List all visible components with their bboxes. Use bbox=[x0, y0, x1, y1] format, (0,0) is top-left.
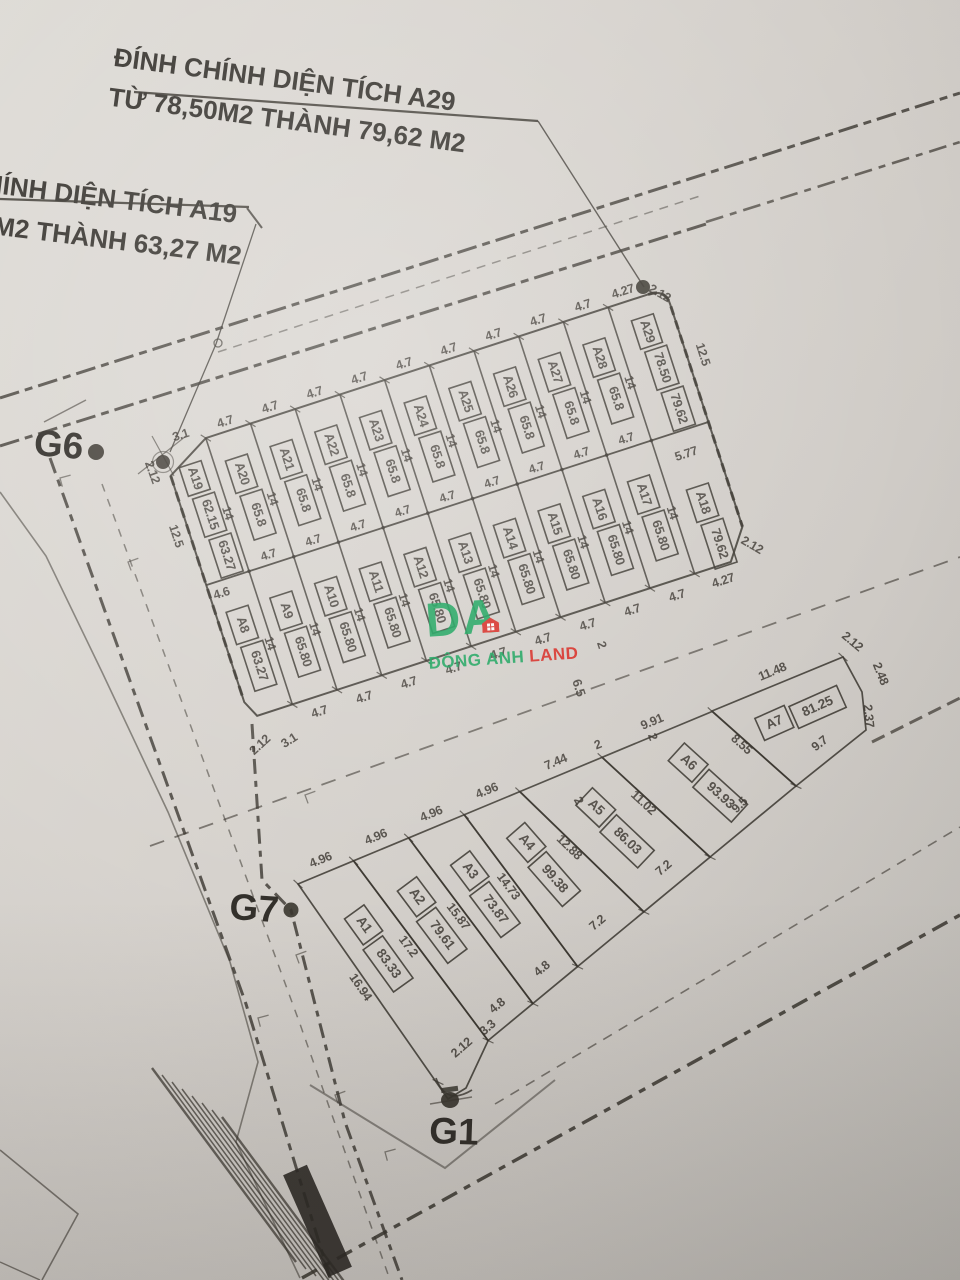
dim-label: 7.2 bbox=[653, 857, 675, 879]
plot-A18: A1879.62 bbox=[686, 482, 737, 570]
plot-id-label: A8 bbox=[234, 615, 253, 635]
survey-point-g7 bbox=[284, 903, 299, 918]
survey-tick bbox=[638, 909, 649, 914]
dim-label: 11.02 bbox=[628, 788, 659, 818]
survey-tick bbox=[460, 811, 469, 819]
dim-label: 4.7 bbox=[215, 412, 235, 431]
dim-label: 2.37 bbox=[861, 704, 877, 729]
survey-tick bbox=[515, 788, 524, 796]
dim-label: 4.7 bbox=[260, 398, 280, 417]
survey-tick bbox=[705, 854, 716, 859]
dim-label: 4.7 bbox=[259, 545, 279, 563]
dim-label: 9.7 bbox=[809, 733, 831, 754]
dim-label: 12.5 bbox=[693, 341, 714, 368]
dim-label: 4.7 bbox=[527, 458, 547, 476]
dim-label: 4.7 bbox=[399, 673, 419, 692]
dim-label: 5.77 bbox=[673, 443, 700, 464]
dim-label: 12.5 bbox=[166, 523, 187, 550]
dim-label: 4.7 bbox=[393, 502, 413, 520]
leader-line bbox=[538, 121, 644, 287]
boundary-line bbox=[0, 1150, 78, 1280]
dim-label: 4.96 bbox=[362, 826, 389, 848]
survey-point-a29 bbox=[636, 280, 650, 294]
dim-label: 4.7 bbox=[354, 688, 374, 707]
plot-area-label: 65.80 bbox=[649, 518, 673, 552]
road-line bbox=[102, 484, 390, 1280]
dim-label: 14 bbox=[219, 504, 237, 521]
dim-label: 4.7 bbox=[439, 340, 459, 359]
road-line bbox=[706, 142, 960, 222]
bench-mark bbox=[258, 1015, 271, 1027]
plot-area-label: 62.15 bbox=[199, 497, 223, 531]
dim-label: 2.48 bbox=[870, 660, 892, 687]
watermark-logo: DA bbox=[424, 583, 647, 650]
dim-label: 17.2 bbox=[396, 933, 421, 960]
survey-tick bbox=[572, 964, 583, 969]
dim-label: 4.7 bbox=[573, 296, 593, 315]
spine-node bbox=[649, 438, 654, 443]
survey-tick bbox=[290, 403, 300, 414]
spine-node bbox=[247, 569, 252, 574]
survey-tick bbox=[349, 857, 358, 865]
dim-label: 4.7 bbox=[309, 702, 329, 721]
bench-mark bbox=[305, 791, 318, 803]
dim-label: 4.27 bbox=[710, 570, 737, 591]
dim-label: 3.1 bbox=[171, 426, 191, 445]
dim-label: 2.12 bbox=[448, 1034, 475, 1060]
survey-tick bbox=[380, 374, 390, 385]
dim-label: 12.88 bbox=[554, 832, 585, 863]
spine-node bbox=[426, 511, 431, 516]
spine-node bbox=[336, 540, 341, 545]
roads-layer bbox=[0, 93, 960, 1280]
road-line bbox=[50, 458, 330, 1278]
dim-label: 7.2 bbox=[586, 912, 608, 934]
plot-A1: A183.33 bbox=[298, 861, 488, 1099]
spine-node bbox=[470, 496, 475, 501]
dim-label: 7.44 bbox=[542, 751, 569, 773]
survey-tick bbox=[294, 880, 303, 888]
dim-label: 4.7 bbox=[483, 325, 503, 344]
dim-label: 2 bbox=[571, 794, 587, 807]
boundary-line bbox=[44, 400, 86, 422]
bench-mark bbox=[60, 475, 73, 487]
leaders-layer bbox=[0, 92, 644, 452]
plot-area-label: 81.25 bbox=[799, 692, 835, 719]
lower-block: A183.33A279.61A373.87A499.38A586.03A693.… bbox=[294, 629, 892, 1099]
block-spine bbox=[206, 422, 708, 585]
plot-area-label: 65.80 bbox=[605, 533, 629, 567]
plot-area-label: 63.27 bbox=[215, 538, 239, 572]
survey-tick bbox=[598, 753, 607, 761]
survey-point-g6 bbox=[88, 444, 104, 460]
dim-label: 4.7 bbox=[394, 354, 414, 373]
spine-node bbox=[381, 525, 386, 530]
survey-tick bbox=[377, 670, 387, 681]
survey-tick bbox=[527, 1001, 538, 1006]
plot-A4: A499.38 bbox=[464, 792, 644, 967]
survey-tick bbox=[287, 699, 297, 710]
dim-label: 4.7 bbox=[616, 429, 636, 447]
spine-node bbox=[515, 482, 520, 487]
survey-point-label-g6: G6 bbox=[32, 422, 85, 468]
survey-tick bbox=[839, 653, 848, 661]
road-line bbox=[495, 827, 960, 1104]
survey-tick bbox=[690, 568, 700, 579]
dim-label: 2.12 bbox=[247, 732, 274, 758]
dim-label: 2.12 bbox=[839, 629, 866, 655]
spine-node bbox=[604, 453, 609, 458]
plot-area-label: 65.80 bbox=[381, 605, 405, 639]
hatch-line bbox=[162, 1075, 306, 1269]
plot-area-label: 65.80 bbox=[292, 634, 316, 668]
survey-tick bbox=[558, 316, 568, 327]
survey-tick bbox=[708, 707, 717, 715]
plot-area-label: 65.80 bbox=[336, 620, 360, 654]
plot-label-group: A781.25 bbox=[755, 683, 846, 743]
survey-tick bbox=[514, 331, 524, 342]
dim-label: 2 bbox=[645, 731, 661, 742]
dim-label: 14 bbox=[261, 635, 279, 652]
dim-label: 4.96 bbox=[473, 779, 500, 801]
survey-point-label-g1: G1 bbox=[429, 1110, 480, 1154]
dim-label: 4.8 bbox=[486, 995, 508, 1017]
survey-point-label-g7: G7 bbox=[228, 886, 280, 931]
dim-label: 4.8 bbox=[531, 958, 553, 980]
dim-label: 4.7 bbox=[528, 311, 548, 330]
spine-node bbox=[291, 554, 296, 559]
plot-A5: A586.03 bbox=[520, 757, 710, 911]
leader-node bbox=[214, 339, 222, 347]
dim-label: 11.48 bbox=[756, 659, 789, 683]
dim-label: 4.7 bbox=[572, 444, 592, 462]
dim-label: 15.87 bbox=[444, 900, 473, 933]
watermark-brand-red: LAND bbox=[529, 643, 579, 665]
dim-label: 4.7 bbox=[349, 369, 369, 388]
dim-label: 2 bbox=[592, 737, 604, 753]
dim-label: 4.96 bbox=[307, 849, 334, 871]
upper-block: A1962.1563.27A2065.8A2165.8A2265.8A2365.… bbox=[135, 265, 786, 766]
plot-id-label: A9 bbox=[277, 600, 296, 620]
plot-area-label: 73.87 bbox=[480, 892, 511, 927]
dim-label: 4.7 bbox=[348, 516, 368, 534]
bench-mark bbox=[385, 1149, 398, 1161]
survey-point-g1-cap bbox=[441, 1086, 459, 1093]
dim-label: 8.55 bbox=[728, 731, 755, 757]
plot-polygon bbox=[712, 657, 866, 786]
plot-A29: A2978.5079.62 bbox=[631, 312, 695, 433]
road-line bbox=[0, 224, 706, 446]
survey-tick bbox=[332, 684, 342, 695]
survey-tick bbox=[469, 345, 479, 356]
leader-line bbox=[247, 208, 262, 228]
dim-label: 4.7 bbox=[667, 586, 687, 605]
boundary-line bbox=[0, 1262, 40, 1280]
survey-tick bbox=[245, 418, 255, 429]
watermark: DA ĐÔNG ANHLAND bbox=[424, 583, 649, 674]
plot-A7: A781.25 bbox=[712, 657, 866, 786]
plot-id-label: A7 bbox=[763, 712, 784, 732]
dim-label: 2.12 bbox=[739, 533, 766, 557]
survey-tick bbox=[645, 583, 655, 594]
road-line bbox=[872, 698, 960, 742]
plot-A19: A1962.1563.27 bbox=[179, 459, 243, 580]
plot-area-label: 99.38 bbox=[539, 861, 572, 896]
survey-tick bbox=[424, 360, 434, 371]
plot-A2: A279.61 bbox=[354, 838, 533, 1041]
survey-tick bbox=[404, 834, 413, 842]
road-line bbox=[218, 196, 700, 352]
plot-area-label: 78.50 bbox=[651, 350, 675, 384]
spine-node bbox=[560, 467, 565, 472]
dim-label: 4.96 bbox=[418, 803, 445, 825]
survey-tick bbox=[603, 302, 613, 313]
plot-area-label: 79.61 bbox=[427, 917, 459, 952]
dim-label: 4.7 bbox=[482, 473, 502, 491]
dim-label: 3.1 bbox=[278, 730, 300, 751]
survey-tick bbox=[791, 783, 802, 788]
plot-area-label: 86.03 bbox=[611, 824, 645, 858]
dim-label: 9.91 bbox=[639, 711, 666, 733]
plot-area-label: 83.33 bbox=[373, 946, 405, 982]
dim-label: 4.7 bbox=[305, 383, 325, 402]
survey-tick bbox=[335, 389, 345, 400]
dim-label: 14.73 bbox=[494, 870, 523, 903]
plot-area-label: 79.62 bbox=[667, 391, 691, 425]
dim-label: 4.6 bbox=[211, 584, 231, 603]
plot-area-label: 65.80 bbox=[560, 547, 584, 581]
plot-area-label: 63.27 bbox=[248, 648, 272, 682]
plot-area-label: 79.62 bbox=[708, 526, 732, 560]
dim-label: 4.7 bbox=[303, 531, 323, 549]
scanned-cadastral-map: A1962.1563.27A2065.8A2165.8A2265.8A2365.… bbox=[0, 0, 960, 1280]
dim-label: 4.7 bbox=[437, 487, 457, 505]
